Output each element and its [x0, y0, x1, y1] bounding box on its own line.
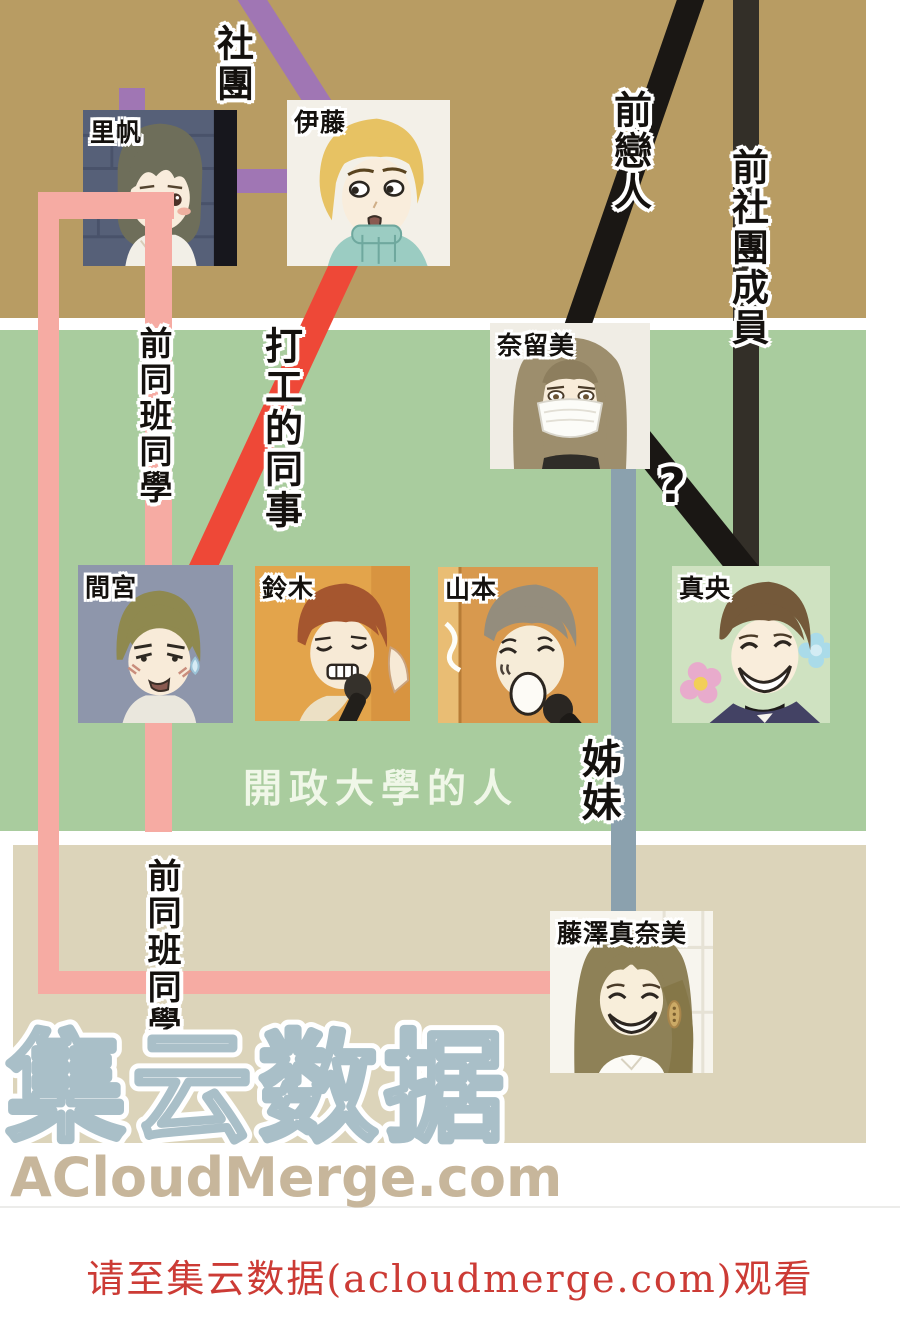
portrait-yamamoto: 山本: [438, 567, 598, 723]
label-former-classmate-upper: 前同班同學: [134, 326, 171, 506]
edge-classmate-left: [38, 192, 59, 994]
label-former-classmate-lower: 前同班同學: [142, 858, 180, 1043]
label-university-group: 開政大學的人: [243, 758, 519, 814]
portrait-mao: 真央: [672, 566, 830, 723]
edge-club-diagonal: [246, 0, 324, 112]
edge-unknown-diagonal: [636, 436, 756, 585]
watermark-site: ACloudMerge.com: [10, 1146, 562, 1209]
narumi-name: 奈留美: [497, 326, 575, 362]
yamamoto-name: 山本: [445, 570, 497, 606]
mao-name: 真央: [679, 569, 731, 605]
watermark-text: 集云数据: [5, 1020, 510, 1158]
label-sisters: 姊妹: [575, 738, 620, 824]
watermark-logo: 集云数据 集云数据: [0, 1018, 600, 1158]
relationship-chart: 里帆 伊藤: [0, 0, 900, 1319]
edge-classmate-mid: [145, 203, 172, 832]
mamiya-name: 間宮: [85, 568, 137, 604]
riho-name: 里帆: [90, 113, 142, 149]
footer-notice: 请至集云数据(acloudmerge.com)观看: [0, 1248, 900, 1303]
ito-name: 伊藤: [294, 103, 346, 139]
suzuki-name: 鈴木: [262, 569, 314, 605]
portrait-narumi: 奈留美: [490, 323, 650, 469]
label-ex-lover: 前戀人: [608, 90, 651, 213]
label-part-time-coworker: 打工的同事: [259, 326, 302, 531]
label-ex-club-member: 前社團成員: [726, 148, 767, 348]
portrait-ito: 伊藤: [287, 100, 450, 266]
manami-name: 藤澤真奈美: [557, 914, 687, 950]
label-unknown-relation: ?: [658, 460, 689, 514]
portrait-suzuki: 鈴木: [255, 566, 410, 721]
edge-classmate-bottom: [38, 971, 552, 994]
label-club: 社團: [211, 24, 252, 104]
portrait-mamiya: 間宮: [78, 565, 233, 723]
